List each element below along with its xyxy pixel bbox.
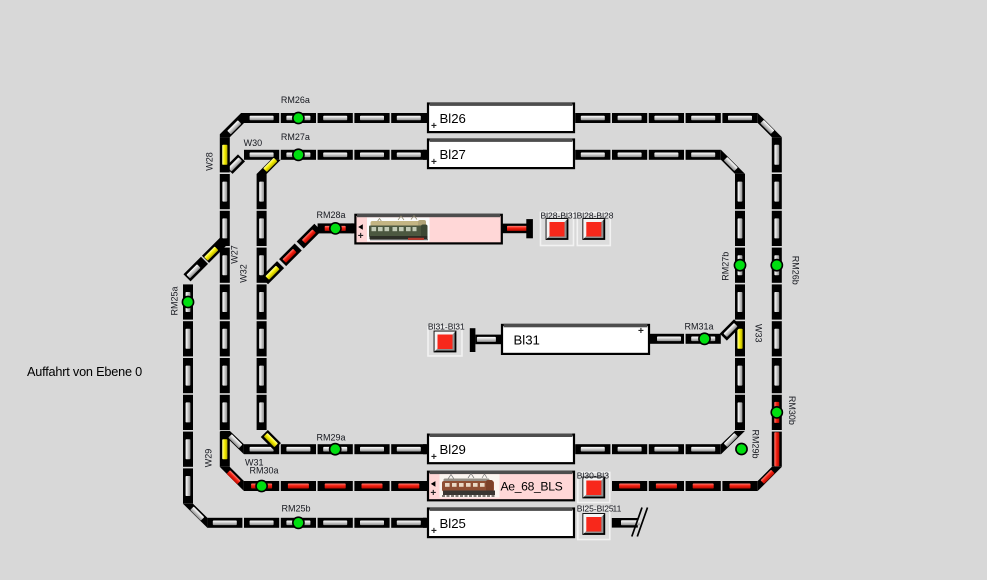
svg-text:+: + [431,526,437,537]
svg-text:+: + [638,326,644,337]
svg-text:+: + [358,231,364,242]
svg-text:Bl28-Bl28: Bl28-Bl28 [577,210,614,220]
svg-text:RM26b: RM26b [790,256,800,285]
svg-text:Bl27: Bl27 [440,147,466,162]
svg-text:Ae_68_BLS: Ae_68_BLS [501,479,563,493]
svg-text:RM27a: RM27a [281,132,310,142]
svg-text:RM25b: RM25b [281,503,310,513]
svg-text:W28: W28 [205,152,215,171]
svg-text:Auffahrt von Ebene 0: Auffahrt von Ebene 0 [27,365,142,379]
svg-text:W30: W30 [244,138,263,148]
svg-text:Bl25-Bl25: Bl25-Bl25 [577,503,614,513]
svg-text:W32: W32 [238,264,248,283]
svg-text:RM30a: RM30a [249,466,278,476]
svg-text:+: + [430,488,436,499]
svg-text:+: + [431,452,437,463]
svg-text:Bl31-Bl31: Bl31-Bl31 [428,322,465,332]
svg-text:W27: W27 [229,245,239,264]
svg-text:Bl25: Bl25 [440,516,466,531]
svg-text:W29: W29 [204,449,214,468]
svg-text:Bl30-Bl3: Bl30-Bl3 [577,470,609,480]
svg-text:W33: W33 [753,324,763,343]
svg-text:RM27b: RM27b [721,252,731,281]
svg-text:RM25a: RM25a [169,286,179,315]
svg-text:RM29a: RM29a [316,433,345,443]
svg-text:Bl26: Bl26 [440,111,466,126]
svg-text:Bl28-Bl31: Bl28-Bl31 [541,210,578,220]
svg-text:RM31a: RM31a [684,322,713,332]
svg-text:+: + [431,157,437,168]
svg-text:RM26a: RM26a [281,95,310,105]
svg-text:RM28a: RM28a [316,210,345,220]
svg-text:RM29b: RM29b [751,429,761,458]
svg-text:+: + [431,121,437,132]
svg-text:RM30b: RM30b [787,396,797,425]
svg-text:Bl29: Bl29 [440,442,466,457]
svg-text:11: 11 [613,504,622,514]
svg-text:Bl31: Bl31 [514,333,540,348]
